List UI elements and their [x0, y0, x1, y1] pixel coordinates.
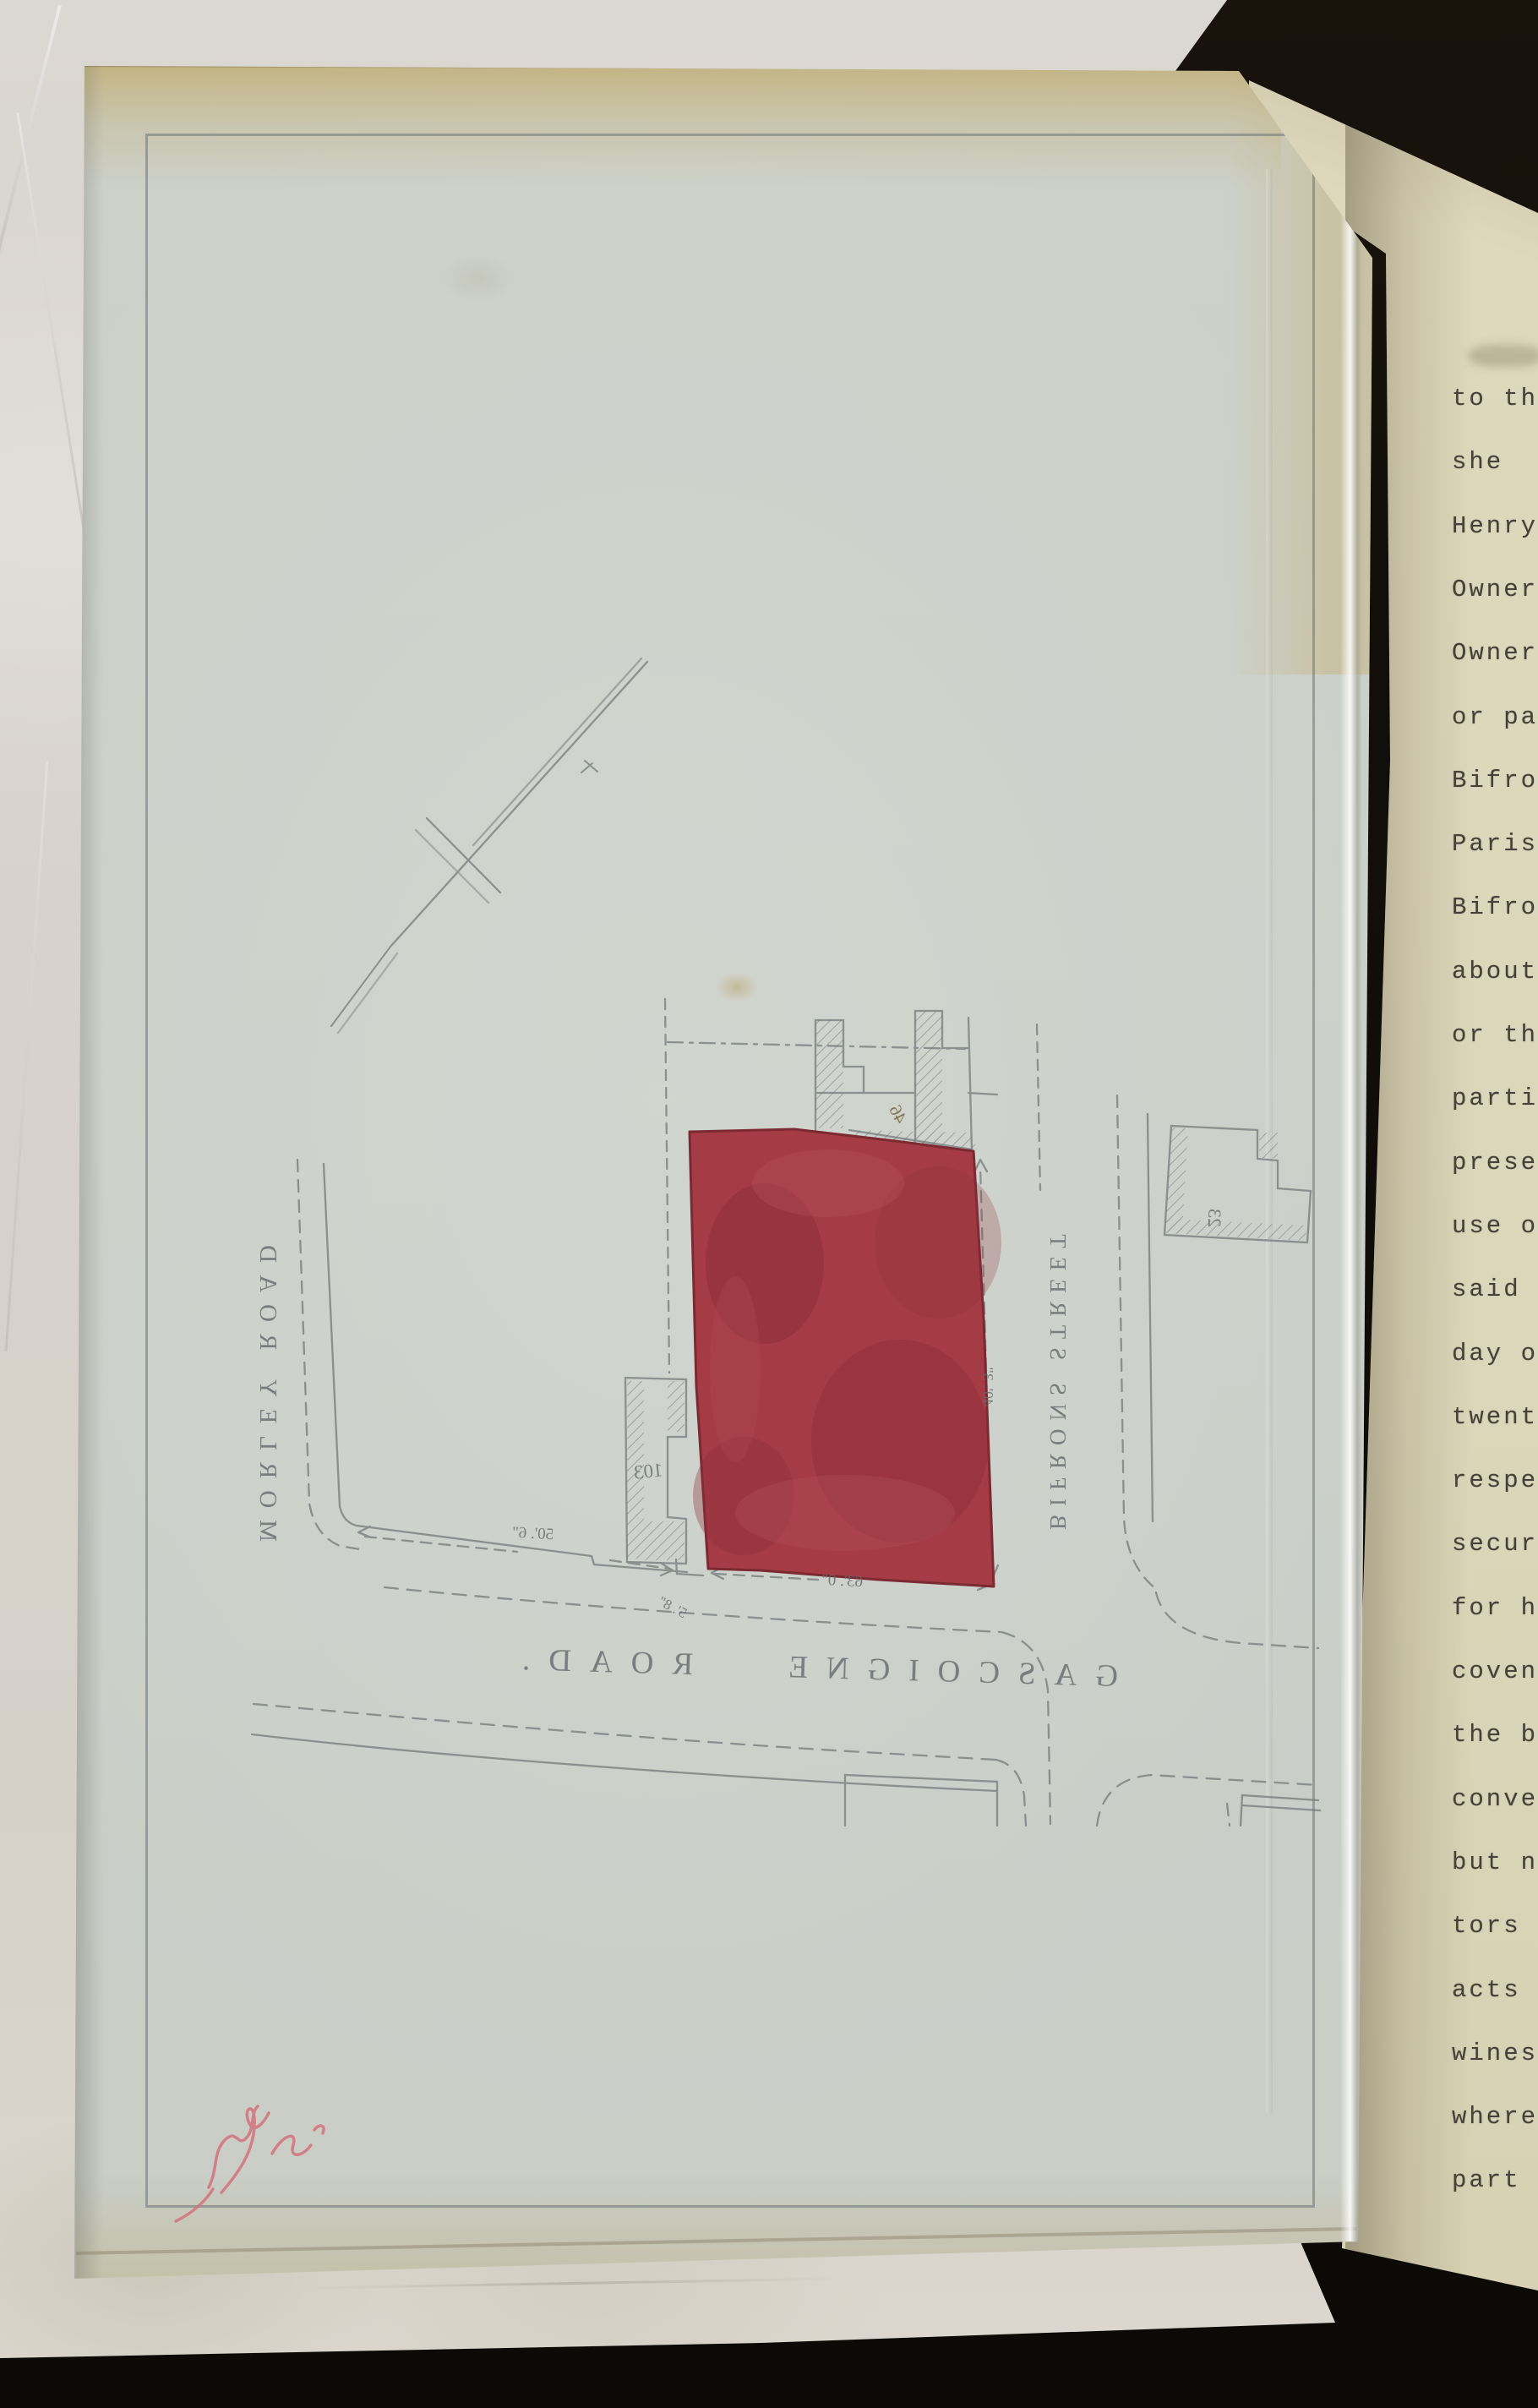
typed-line: or pa: [1452, 703, 1538, 731]
typed-line: coven: [1452, 1657, 1538, 1685]
typed-line: twent: [1452, 1403, 1538, 1431]
typed-line: for h: [1452, 1594, 1538, 1622]
dimension-label-frontage-south: 63'. 0": [821, 1571, 863, 1592]
typed-line: conve: [1452, 1785, 1538, 1813]
typed-line: use o: [1452, 1212, 1538, 1240]
tracing-cloth-plan: MORLEY ROAD BIFRONS STREET GASCOIGNE ROA…: [0, 0, 1538, 2408]
street-label-bifrons-street: BIFRONS STREET: [1044, 1530, 1349, 1556]
cloth-crease: [1266, 169, 1273, 2113]
paper-crease: [0, 5, 62, 350]
typed-line: part: [1452, 2166, 1538, 2194]
typed-line: about: [1452, 958, 1538, 986]
plot-number-103: 103: [633, 1459, 664, 1483]
paper-crease: [5, 762, 49, 1352]
paper-crease: [304, 2277, 845, 2289]
street-label-text: MORLEY ROAD: [254, 1233, 281, 1542]
plot-number-text: 103: [633, 1459, 664, 1483]
typed-line: Henry: [1452, 512, 1538, 540]
typed-line: acts: [1452, 1976, 1538, 2004]
typed-line: Paris: [1452, 830, 1538, 858]
typed-line: but n: [1452, 1848, 1538, 1876]
typed-line: wines: [1452, 2039, 1538, 2067]
typed-line: she: [1452, 448, 1538, 476]
typed-line: Bifro: [1452, 767, 1538, 794]
cloth-fold-highlight: [1340, 73, 1362, 2241]
typed-line: parti: [1452, 1084, 1538, 1112]
dimension-label-frontage-west: 50'. 6": [511, 1524, 554, 1545]
dimension-text: 40'. 3": [979, 1367, 996, 1406]
typed-line: Owner: [1452, 576, 1538, 603]
dimension-text: 63'. 0": [821, 1571, 863, 1592]
typed-line: said: [1452, 1275, 1538, 1303]
archival-scan-scene: to thsheHenryOwnerOwneror paBifroParisBi…: [0, 0, 1538, 2408]
typed-line: Owner: [1452, 639, 1538, 667]
typed-line: Bifro: [1452, 893, 1538, 921]
typed-line: day o: [1452, 1340, 1538, 1368]
dimension-label-depth-east: 40'. 3": [979, 1406, 1018, 1424]
paper-crease: [16, 112, 87, 547]
typed-line: respe: [1452, 1466, 1538, 1494]
plot-number-23: 23: [1203, 1227, 1222, 1249]
typed-line: to th: [1452, 385, 1538, 412]
plot-number-text: 23: [1203, 1209, 1225, 1227]
typed-line: where: [1452, 2103, 1538, 2131]
typed-line: the b: [1452, 1721, 1538, 1749]
typed-line: or th: [1452, 1021, 1538, 1049]
typed-line: tors: [1452, 1912, 1538, 1940]
typed-line: prese: [1452, 1149, 1538, 1177]
street-label-morley-road: MORLEY ROAD: [254, 1542, 562, 1570]
ghost-ink-smudge: [1469, 345, 1538, 367]
plan-border: [145, 134, 1315, 2208]
dimension-text: 50'. 6": [511, 1524, 554, 1545]
street-label-text: BIFRONS STREET: [1044, 1226, 1071, 1530]
typed-line: secur: [1452, 1530, 1538, 1558]
